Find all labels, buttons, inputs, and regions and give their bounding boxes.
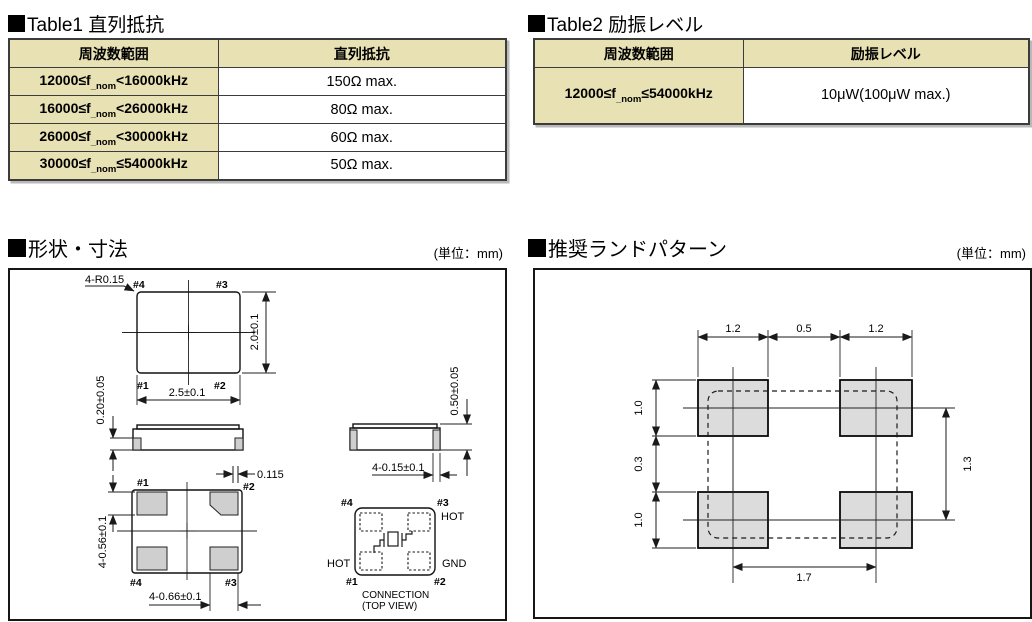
- table2-header-frequency: 周波数範囲: [534, 39, 743, 68]
- pin-label: #4: [133, 279, 145, 291]
- table1-series-resistance: 周波数範囲 直列抵抗 12000≤f_nom<16000kHz 150Ω max…: [8, 38, 507, 181]
- land-pattern: 1.2 0.5 1.2 1.0 0.3 1.0 1.3 1.7: [633, 323, 974, 584]
- dim-label-offset: 0.115: [257, 469, 284, 481]
- resistance-value-cell: 150Ω max.: [218, 68, 506, 96]
- resistance-value-cell: 80Ω max.: [218, 96, 506, 124]
- resistance-value-cell: 50Ω max.: [218, 152, 506, 180]
- section-square-icon: [528, 239, 546, 257]
- dim-label-width: 2.5±0.1: [169, 387, 206, 399]
- top-view-caption: (TOP VIEW): [362, 601, 417, 612]
- dim-label-pad-height-bottom: 1.0: [633, 512, 645, 527]
- pin-label: #1: [346, 576, 358, 588]
- crystal-symbol: [374, 531, 412, 553]
- pin-label: #2: [214, 380, 226, 392]
- pin-label: #4: [341, 497, 353, 509]
- dim-label-height: 2.0±0.1: [249, 314, 261, 351]
- section-square-icon: [8, 239, 26, 257]
- corner-radius-note: 4-R0.15: [85, 274, 124, 286]
- pin-label: #3: [216, 279, 228, 291]
- table1-title-text: Table1 直列抵抗: [27, 10, 164, 37]
- frequency-range-cell: 12000≤f_nom≤54000kHz: [534, 68, 743, 124]
- section-square-icon: [8, 15, 25, 32]
- shape-unit-note: (単位：mm): [383, 243, 503, 262]
- table2-title-text: Table2 励振レベル: [547, 10, 703, 37]
- section-square-icon: [528, 15, 545, 32]
- pin-label: #2: [243, 481, 255, 493]
- pin-label: #1: [137, 477, 149, 489]
- frequency-range-cell: 12000≤f_nom<16000kHz: [9, 68, 218, 96]
- table2-drive-level: 周波数範囲 励振レベル 12000≤f_nom≤54000kHz 10μW(10…: [533, 38, 1030, 125]
- pin-label: #2: [434, 576, 446, 588]
- table2-title: Table2 励振レベル: [528, 10, 703, 37]
- dim-label-side-pad: 4-0.15±0.1: [372, 462, 425, 474]
- bottom-view: #1 #2 #4 #3 0.115 4-0.56±0.1 4-0.66±0.1: [97, 466, 284, 611]
- shape-title-text: 形状・寸法: [28, 233, 128, 262]
- gnd-label: GND: [442, 558, 467, 570]
- land-unit-note: (単位：mm): [906, 243, 1026, 262]
- side-view-right: 0.50±0.05 4-0.15±0.1: [350, 367, 472, 482]
- shape-dimensions-panel: #4 #3 #1 #2 4-R0.15 2.0±0.1 2.5±0.1 0.20…: [8, 268, 507, 621]
- table1-header-resistance: 直列抵抗: [218, 39, 506, 68]
- pin-label: #3: [437, 497, 449, 509]
- dim-label-pad-height-top: 1.0: [633, 400, 645, 415]
- shape-dimensions-drawing: #4 #3 #1 #2 4-R0.15 2.0±0.1 2.5±0.1 0.20…: [10, 270, 501, 615]
- table2-header-drive-level: 励振レベル: [743, 39, 1029, 68]
- drive-level-value-cell: 10μW(100μW max.): [743, 68, 1029, 124]
- dim-label-vertical-pitch: 1.3: [962, 456, 974, 471]
- resistance-value-cell: 60Ω max.: [218, 124, 506, 152]
- hot-label: HOT: [327, 558, 351, 570]
- frequency-range-cell: 26000≤f_nom<30000kHz: [9, 124, 218, 152]
- table-row: 16000≤f_nom<26000kHz 80Ω max.: [9, 96, 506, 124]
- dim-label-pad-width-right: 1.2: [868, 323, 883, 335]
- land-title-text: 推奨ランドパターン: [548, 233, 727, 262]
- top-view: #4 #3 #1 #2 4-R0.15 2.0±0.1 2.5±0.1: [85, 274, 276, 405]
- table-row: 30000≤f_nom≤54000kHz 50Ω max.: [9, 152, 506, 180]
- table1-title: Table1 直列抵抗: [8, 10, 164, 37]
- connection-diagram: #4 #3 HOT HOT GND #1 #2 CONNECTION (TOP …: [327, 497, 467, 612]
- table-row: 12000≤f_nom≤54000kHz 10μW(100μW max.): [534, 68, 1029, 124]
- table-row: 26000≤f_nom<30000kHz 60Ω max.: [9, 124, 506, 152]
- land-section-title: 推奨ランドパターン: [528, 233, 727, 262]
- dim-label-pad-width: 4-0.66±0.1: [149, 591, 202, 603]
- dim-label-row-gap: 0.3: [633, 456, 645, 471]
- dim-label-pad-width-left: 1.2: [725, 323, 740, 335]
- connection-caption: CONNECTION: [362, 590, 429, 601]
- pin-label: #3: [225, 577, 237, 589]
- table-row: 12000≤f_nom<16000kHz 150Ω max.: [9, 68, 506, 96]
- land-pattern-panel: 1.2 0.5 1.2 1.0 0.3 1.0 1.3 1.7: [533, 268, 1032, 619]
- hot-label: HOT: [441, 511, 465, 523]
- shape-section-title: 形状・寸法: [8, 233, 128, 262]
- frequency-range-cell: 30000≤f_nom≤54000kHz: [9, 152, 218, 180]
- dim-label-horizontal-pitch: 1.7: [796, 572, 811, 584]
- frequency-range-cell: 16000≤f_nom<26000kHz: [9, 96, 218, 124]
- land-pattern-drawing: 1.2 0.5 1.2 1.0 0.3 1.0 1.3 1.7: [535, 270, 1026, 613]
- pin-label: #4: [130, 577, 142, 589]
- pin-label: #1: [137, 380, 149, 392]
- table1-header-frequency: 周波数範囲: [9, 39, 218, 68]
- dim-label-gap: 0.5: [796, 323, 811, 335]
- dim-label-side-height: 0.50±0.05: [449, 367, 461, 416]
- dim-label-pad-thickness: 0.20±0.05: [95, 376, 107, 425]
- dim-label-pad-height: 4-0.56±0.1: [97, 516, 109, 569]
